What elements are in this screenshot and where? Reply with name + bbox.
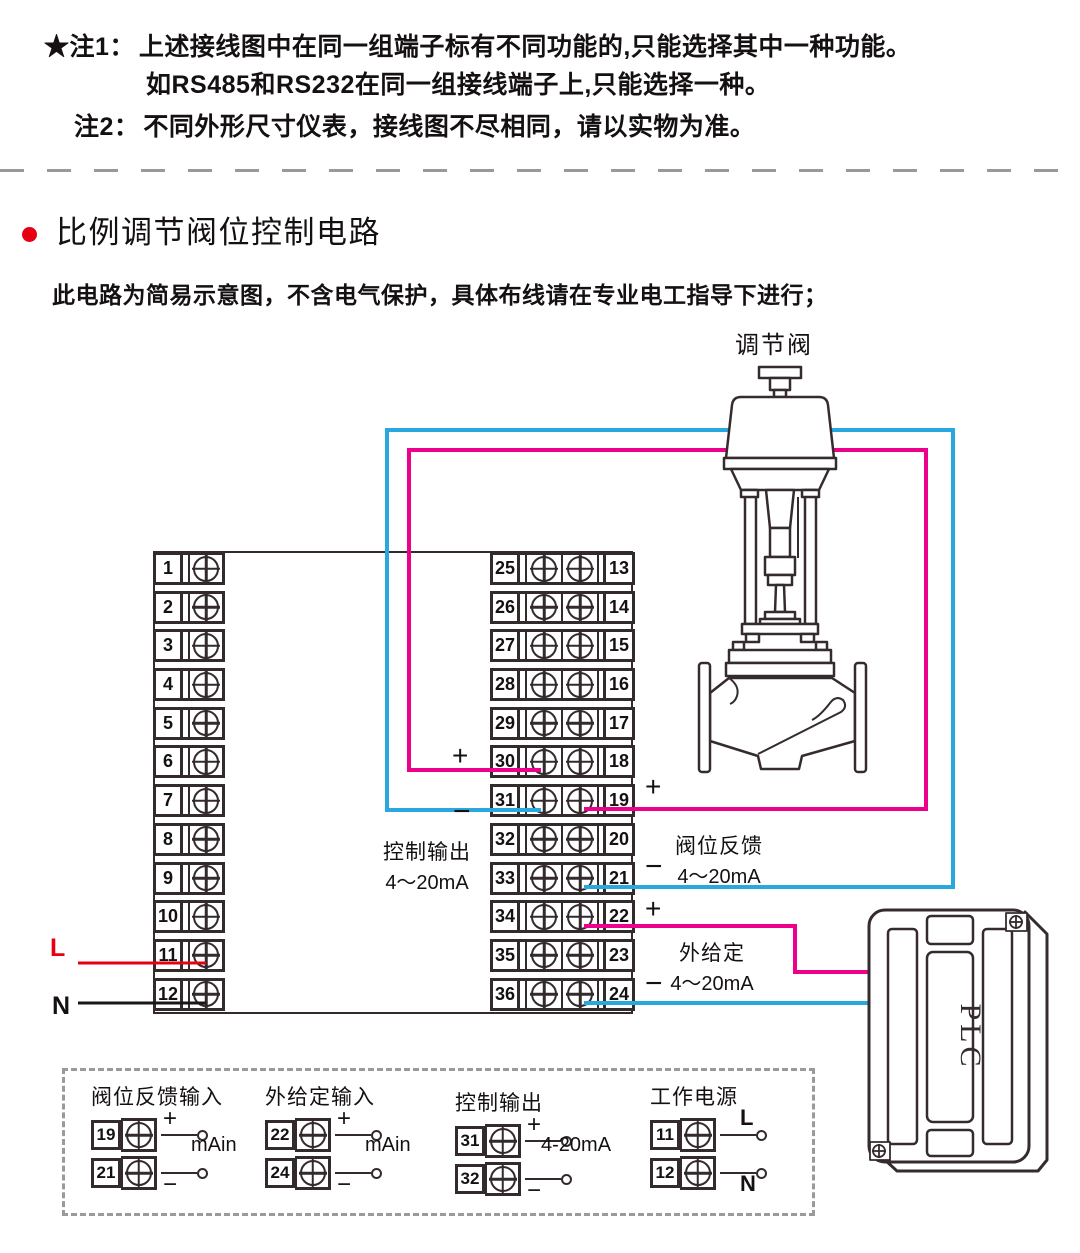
external-setpoint-label: 外给定 4～20mA <box>650 937 774 996</box>
plus-sign-terminal30: + <box>452 740 468 772</box>
valve-body <box>710 678 855 769</box>
screw-icon <box>531 710 557 736</box>
right-flange <box>855 663 866 772</box>
terminal-row: 11 <box>153 939 225 972</box>
note2-text: 不同外形尺寸仪表，接线图不尽相同，请以实物为准。 <box>143 113 755 141</box>
legend-row: 24 − <box>265 1156 445 1190</box>
legend-row: 11 L <box>650 1118 830 1152</box>
screw-icon <box>193 942 219 968</box>
terminal-row: 10 <box>153 900 225 933</box>
plc-label: PLC <box>954 1003 987 1070</box>
plus-sign-terminal19: + <box>645 771 661 803</box>
terminal-row: 9 <box>153 862 225 895</box>
plus-sign-terminal22: + <box>645 893 661 925</box>
note1-label: ★注1： <box>44 33 135 61</box>
plc-box: PLC <box>869 910 1047 1171</box>
terminal-row: 1 <box>153 552 225 585</box>
screw-icon <box>193 981 219 1007</box>
screw-icon <box>567 788 593 814</box>
note1-text: 上述接线图中在同一组端子标有不同功能的,只能选择其中一种功能。 <box>139 33 911 61</box>
actuator-dome <box>726 397 834 458</box>
screw-icon <box>685 1122 711 1148</box>
screw-icon <box>490 1128 516 1154</box>
screw-icon <box>567 556 593 582</box>
terminal-ring-icon <box>756 1168 767 1179</box>
screw-icon <box>531 788 557 814</box>
terminal-ring-icon <box>197 1168 208 1179</box>
screw-icon <box>567 710 593 736</box>
screw-icon <box>531 556 557 582</box>
minus-sign-terminal24: − <box>645 967 663 1001</box>
bullet-icon <box>22 227 37 242</box>
terminal-row: 2917 <box>490 707 635 740</box>
screw-icon <box>567 904 593 930</box>
terminal-row: 2614 <box>490 591 635 624</box>
control-valve-drawing <box>699 367 866 772</box>
plc-corner-screws <box>870 913 1027 1160</box>
lead-wire <box>720 1134 756 1137</box>
valve-feedback-label: 阀位反馈 4～20mA <box>653 830 785 889</box>
minus-sign-terminal31: − <box>453 795 471 829</box>
terminal-row: 6 <box>153 745 225 778</box>
legend-row: 21 − <box>91 1156 271 1190</box>
screw-icon <box>193 672 219 698</box>
terminal-row: 3422 <box>490 900 635 933</box>
screw-icon <box>567 672 593 698</box>
screw-icon <box>531 942 557 968</box>
control-output-label: 控制输出 4～20mA <box>368 836 486 895</box>
terminal-ring-icon <box>756 1130 767 1141</box>
screw-icon <box>300 1160 326 1186</box>
screw-icon <box>531 826 557 852</box>
screw-icon <box>567 865 593 891</box>
screw-icon <box>567 981 593 1007</box>
screw-icon <box>531 594 557 620</box>
screw-icon <box>567 633 593 659</box>
terminal-row: 3119 <box>490 784 635 817</box>
legend-row: 19 + <box>91 1118 271 1152</box>
screw-icon <box>193 865 219 891</box>
screw-icon <box>531 633 557 659</box>
screw-icon <box>531 904 557 930</box>
terminal-row: 2715 <box>490 629 635 662</box>
left-terminal-strip: 1 2 3 4 5 6 7 8 9 10 11 12 <box>153 552 225 1016</box>
screw-icon <box>193 826 219 852</box>
screw-icon <box>490 1166 516 1192</box>
screw-icon <box>193 749 219 775</box>
terminal-row: 3018 <box>490 745 635 778</box>
terminal-row: 2513 <box>490 552 635 585</box>
section-title: 比例调节阀位控制电路 <box>56 207 381 252</box>
screw-icon <box>193 710 219 736</box>
screw-icon <box>567 749 593 775</box>
screw-icon <box>531 749 557 775</box>
terminal-legend-box: 阀位反馈输入 19 + 21 − mAin 外给定输入 22 + 24 <box>62 1068 815 1216</box>
terminal-row: 3 <box>153 629 225 662</box>
screw-icon <box>567 594 593 620</box>
terminal-row: 3321 <box>490 862 635 895</box>
screw-icon <box>193 556 219 582</box>
terminal-row: 2816 <box>490 668 635 701</box>
terminal-row: 3523 <box>490 939 635 972</box>
terminal-row: 7 <box>153 784 225 817</box>
line-n-label: N <box>52 992 70 1021</box>
terminal-row: 8 <box>153 823 225 856</box>
terminal-ring-icon <box>561 1174 572 1185</box>
legend-group-working-power: 工作电源 11 L 12 N <box>650 1081 830 1194</box>
screw-icon <box>193 788 219 814</box>
screw-icon <box>567 942 593 968</box>
legend-row: 32 − <box>455 1162 635 1196</box>
line-l-label: L <box>50 934 65 963</box>
screw-icon <box>685 1160 711 1186</box>
terminal-row: 12 <box>153 978 225 1011</box>
terminal-row: 5 <box>153 707 225 740</box>
screw-icon <box>126 1122 152 1148</box>
screw-icon <box>531 981 557 1007</box>
note2-line: 注2：不同外形尺寸仪表，接线图不尽相同，请以实物为准。 <box>74 107 755 143</box>
legend-row: 12 N <box>650 1156 830 1190</box>
legend-group-control-output: 控制输出 31 + 32 − 4-20mA <box>455 1087 635 1200</box>
legend-group-external-setpoint-input: 外给定输入 22 + 24 − mAin <box>265 1081 445 1194</box>
screw-icon <box>193 594 219 620</box>
left-flange <box>699 663 710 772</box>
valve-label: 调节阀 <box>735 325 813 360</box>
screw-icon <box>126 1160 152 1186</box>
terminal-row: 4 <box>153 668 225 701</box>
note1-line1: ★注1：上述接线图中在同一组端子标有不同功能的,只能选择其中一种功能。 <box>44 27 911 63</box>
minus-sign-terminal21: − <box>645 850 663 884</box>
middle-terminal-strip: 2513 2614 2715 2816 2917 3018 3119 3220 … <box>490 552 635 1016</box>
screw-icon <box>193 633 219 659</box>
terminal-row: 2 <box>153 591 225 624</box>
note2-label: 注2： <box>74 113 139 141</box>
note1-line2: 如RS485和RS232在同一组接线端子上,只能选择一种。 <box>146 65 770 101</box>
legend-group-valve-feedback-input: 阀位反馈输入 19 + 21 − mAin <box>91 1081 271 1194</box>
screw-icon <box>531 672 557 698</box>
screw-icon <box>531 865 557 891</box>
terminal-ring-icon <box>371 1168 382 1179</box>
screw-icon <box>193 904 219 930</box>
legend-row: 22 + <box>265 1118 445 1152</box>
terminal-row: 3220 <box>490 823 635 856</box>
dashed-separator <box>0 169 1080 172</box>
screw-icon <box>567 826 593 852</box>
section-subtitle: 此电路为简易示意图，不含电气保护，具体布线请在专业电工指导下进行； <box>52 276 828 310</box>
screw-icon <box>300 1122 326 1148</box>
terminal-row: 3624 <box>490 978 635 1011</box>
